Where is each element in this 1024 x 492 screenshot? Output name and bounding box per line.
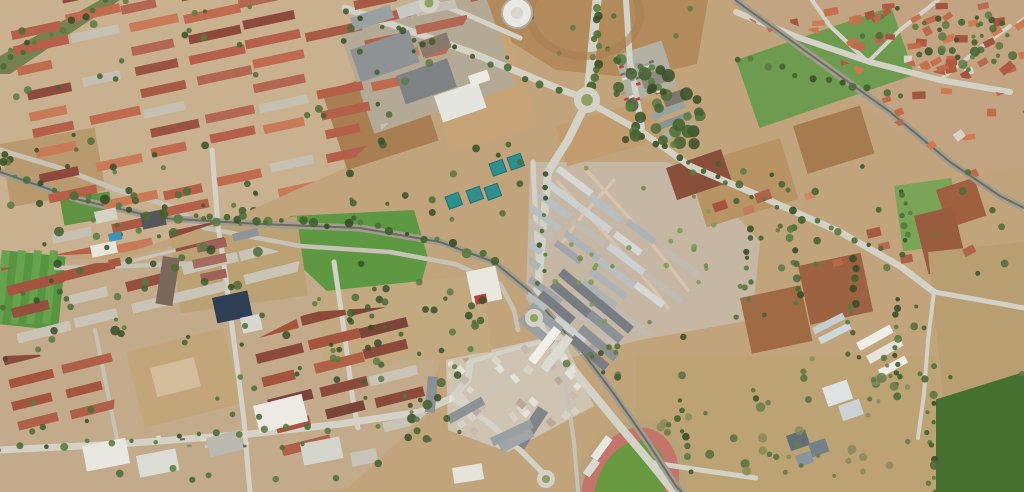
tree bbox=[409, 410, 413, 414]
tree bbox=[758, 433, 767, 442]
tree bbox=[850, 330, 855, 335]
tree bbox=[885, 363, 889, 367]
tree bbox=[199, 243, 208, 252]
tree bbox=[733, 198, 739, 204]
tree bbox=[420, 236, 427, 243]
tree bbox=[860, 469, 866, 475]
tree bbox=[542, 213, 546, 217]
tree bbox=[231, 203, 236, 208]
tree bbox=[91, 217, 96, 222]
tree bbox=[52, 188, 57, 193]
satellite-map-view[interactable] bbox=[0, 0, 1024, 492]
tree bbox=[931, 401, 936, 406]
tree bbox=[201, 142, 209, 150]
building bbox=[941, 88, 952, 95]
tree bbox=[751, 388, 756, 393]
tree bbox=[42, 242, 46, 246]
tree bbox=[449, 329, 456, 336]
tree bbox=[799, 463, 803, 467]
tree bbox=[894, 370, 899, 375]
tree bbox=[652, 141, 659, 148]
tree bbox=[753, 395, 759, 401]
tree bbox=[684, 443, 690, 449]
tree bbox=[153, 440, 157, 444]
tree bbox=[31, 40, 36, 45]
tree bbox=[683, 112, 692, 121]
tree bbox=[556, 87, 563, 94]
tree bbox=[201, 278, 209, 286]
tree bbox=[374, 339, 382, 347]
tree bbox=[113, 76, 119, 82]
tree bbox=[65, 164, 70, 169]
tree bbox=[0, 305, 6, 311]
tree bbox=[996, 53, 1000, 57]
tree bbox=[298, 366, 302, 370]
tree bbox=[813, 261, 819, 267]
tree bbox=[468, 302, 475, 309]
tree bbox=[330, 348, 335, 353]
tree bbox=[748, 279, 753, 284]
tree bbox=[863, 84, 870, 91]
tree bbox=[589, 252, 593, 256]
tree bbox=[201, 216, 206, 221]
tree bbox=[385, 202, 389, 206]
tree bbox=[958, 60, 967, 69]
tree bbox=[810, 356, 815, 361]
tree bbox=[283, 424, 289, 430]
tree bbox=[536, 80, 544, 88]
tree bbox=[899, 192, 905, 198]
tree bbox=[651, 123, 662, 134]
tree bbox=[29, 428, 35, 434]
tree bbox=[989, 25, 996, 32]
tree bbox=[237, 374, 243, 380]
tree bbox=[783, 470, 788, 475]
tree bbox=[240, 342, 244, 346]
tree bbox=[798, 216, 806, 224]
tree bbox=[496, 153, 501, 158]
tree bbox=[834, 228, 842, 236]
tree bbox=[552, 279, 558, 285]
tree bbox=[625, 103, 634, 112]
tree bbox=[368, 325, 374, 331]
tree bbox=[680, 87, 693, 100]
tree bbox=[376, 424, 381, 429]
tree bbox=[87, 137, 95, 145]
tree bbox=[758, 235, 763, 240]
tree bbox=[252, 217, 260, 225]
tree bbox=[789, 207, 797, 215]
tree bbox=[800, 374, 807, 381]
tree bbox=[85, 419, 89, 423]
tree bbox=[48, 336, 55, 343]
tree bbox=[1008, 51, 1017, 60]
tree bbox=[778, 223, 783, 228]
tree bbox=[666, 422, 672, 428]
tree bbox=[849, 255, 857, 263]
tree bbox=[895, 297, 899, 301]
tree bbox=[385, 227, 393, 235]
tree bbox=[883, 264, 890, 271]
tree bbox=[412, 49, 416, 53]
tree bbox=[420, 41, 426, 47]
tree bbox=[625, 68, 637, 80]
tree bbox=[60, 443, 68, 451]
tree bbox=[899, 252, 905, 258]
tree bbox=[905, 232, 911, 238]
tree bbox=[141, 278, 149, 286]
tree bbox=[40, 424, 46, 430]
tree bbox=[871, 377, 877, 383]
tree bbox=[893, 392, 901, 400]
tree bbox=[114, 317, 118, 321]
tree bbox=[852, 265, 859, 272]
tree bbox=[352, 294, 360, 302]
tree bbox=[175, 191, 182, 198]
tree bbox=[971, 35, 975, 39]
tree bbox=[696, 280, 700, 284]
tree bbox=[141, 285, 148, 292]
tree bbox=[417, 352, 421, 356]
tree bbox=[126, 207, 132, 213]
tree bbox=[916, 51, 922, 57]
tree bbox=[894, 335, 902, 343]
tree bbox=[122, 325, 127, 330]
tree bbox=[404, 434, 412, 442]
tree bbox=[980, 34, 984, 38]
tree bbox=[998, 223, 1005, 230]
tree bbox=[877, 373, 887, 383]
building bbox=[885, 34, 895, 40]
tree bbox=[845, 458, 851, 464]
tree bbox=[635, 112, 646, 123]
tree bbox=[272, 476, 279, 483]
tree bbox=[333, 475, 340, 482]
tree bbox=[740, 168, 747, 175]
tree bbox=[414, 427, 421, 434]
tree bbox=[401, 77, 409, 85]
tree bbox=[212, 218, 221, 227]
tree bbox=[350, 200, 357, 207]
tree bbox=[570, 25, 576, 31]
tree bbox=[54, 227, 64, 237]
tree bbox=[375, 222, 381, 228]
tree bbox=[730, 434, 738, 442]
tree bbox=[20, 50, 26, 56]
tree bbox=[638, 64, 644, 70]
tree bbox=[890, 382, 899, 391]
tree bbox=[610, 264, 615, 269]
tree bbox=[472, 144, 480, 152]
tree bbox=[44, 444, 49, 449]
tree bbox=[593, 66, 600, 73]
tree bbox=[649, 64, 656, 71]
tree bbox=[978, 21, 983, 26]
tree bbox=[321, 113, 327, 119]
tree bbox=[985, 11, 993, 19]
tree bbox=[402, 192, 409, 199]
tree bbox=[542, 269, 546, 273]
tree bbox=[90, 20, 98, 28]
tree bbox=[691, 244, 697, 250]
tree bbox=[119, 58, 125, 64]
tree bbox=[429, 196, 436, 203]
tree bbox=[792, 73, 797, 78]
tree bbox=[248, 5, 252, 9]
tree bbox=[434, 394, 442, 402]
tree bbox=[82, 13, 89, 20]
tree bbox=[678, 398, 682, 402]
tree bbox=[904, 201, 908, 205]
tree bbox=[626, 245, 632, 251]
tree bbox=[905, 384, 911, 390]
tree bbox=[647, 83, 657, 93]
tree bbox=[517, 159, 523, 165]
tree bbox=[663, 263, 669, 269]
building bbox=[180, 438, 185, 441]
tree bbox=[762, 313, 767, 318]
tree bbox=[357, 16, 363, 22]
tree bbox=[263, 220, 268, 225]
tree bbox=[921, 375, 928, 382]
tree bbox=[576, 280, 581, 285]
tree bbox=[563, 360, 571, 368]
tree bbox=[692, 195, 696, 199]
tree bbox=[704, 263, 709, 268]
tree bbox=[244, 180, 251, 187]
tree bbox=[606, 344, 612, 350]
tree bbox=[55, 85, 60, 90]
tree bbox=[924, 430, 929, 435]
tree bbox=[989, 207, 995, 213]
tree bbox=[13, 93, 20, 100]
tree bbox=[540, 229, 545, 234]
building bbox=[156, 436, 160, 439]
tree bbox=[447, 288, 454, 295]
tree bbox=[398, 332, 403, 337]
tree bbox=[684, 453, 691, 460]
tree bbox=[535, 281, 540, 286]
tree bbox=[479, 296, 487, 304]
tree bbox=[654, 103, 664, 113]
tree bbox=[793, 260, 800, 267]
tree bbox=[959, 187, 967, 195]
tree bbox=[358, 261, 365, 268]
tree bbox=[892, 345, 897, 350]
tree bbox=[849, 83, 857, 91]
tree bbox=[1, 151, 8, 158]
tree bbox=[37, 180, 43, 186]
tree bbox=[115, 223, 120, 228]
tree bbox=[449, 239, 457, 247]
tree bbox=[888, 374, 892, 378]
tree bbox=[895, 362, 900, 367]
tree bbox=[487, 61, 493, 67]
tree bbox=[74, 147, 79, 152]
tree bbox=[309, 218, 318, 227]
tree bbox=[680, 429, 684, 433]
tree bbox=[405, 232, 409, 236]
tree bbox=[773, 454, 779, 460]
tree bbox=[680, 334, 687, 341]
tree bbox=[866, 413, 871, 418]
tree bbox=[93, 233, 100, 240]
tree bbox=[795, 426, 804, 435]
tree bbox=[711, 222, 716, 227]
tree bbox=[749, 195, 753, 199]
tree bbox=[999, 20, 1005, 26]
tree bbox=[233, 281, 242, 290]
tree bbox=[192, 10, 198, 16]
tree bbox=[186, 335, 190, 339]
tree bbox=[224, 214, 231, 221]
tree bbox=[53, 260, 61, 268]
tree bbox=[593, 4, 601, 12]
tree bbox=[341, 38, 347, 44]
tree bbox=[860, 33, 865, 38]
tree bbox=[178, 254, 185, 261]
tree bbox=[958, 19, 965, 26]
tree bbox=[929, 442, 934, 447]
tree bbox=[16, 442, 23, 449]
tree bbox=[706, 209, 711, 214]
tree bbox=[343, 8, 349, 14]
tree bbox=[69, 191, 78, 200]
tree bbox=[33, 297, 39, 303]
tree bbox=[747, 56, 753, 62]
tree bbox=[735, 180, 743, 188]
tree bbox=[465, 312, 473, 320]
tree bbox=[437, 378, 446, 387]
tree bbox=[357, 49, 363, 55]
tree bbox=[363, 396, 367, 400]
tree bbox=[892, 311, 898, 317]
tree bbox=[491, 257, 499, 265]
tree bbox=[304, 112, 310, 118]
tree bbox=[705, 450, 714, 459]
tree bbox=[932, 476, 936, 480]
tree bbox=[201, 203, 205, 207]
tree bbox=[386, 111, 393, 118]
tree bbox=[767, 451, 773, 457]
tree bbox=[378, 137, 385, 144]
tree bbox=[794, 441, 802, 449]
tree bbox=[434, 236, 439, 241]
tree bbox=[690, 169, 696, 175]
tree bbox=[324, 428, 331, 435]
tree bbox=[0, 63, 6, 69]
tree bbox=[347, 309, 355, 317]
tree bbox=[256, 414, 262, 420]
tree bbox=[100, 195, 110, 205]
tree bbox=[334, 376, 341, 383]
tree bbox=[776, 228, 780, 232]
tree bbox=[449, 217, 454, 222]
tree bbox=[588, 279, 594, 285]
water-tank-center bbox=[511, 7, 523, 19]
tree bbox=[35, 346, 41, 352]
tree bbox=[471, 322, 479, 330]
building bbox=[935, 3, 948, 10]
tree bbox=[931, 420, 935, 424]
tree bbox=[589, 302, 594, 307]
tree bbox=[312, 301, 317, 306]
tree bbox=[1005, 33, 1009, 37]
tree bbox=[299, 216, 307, 224]
tree bbox=[450, 170, 457, 177]
tree bbox=[418, 398, 423, 403]
tree bbox=[177, 434, 182, 439]
tree bbox=[443, 415, 450, 422]
building bbox=[244, 442, 249, 445]
tree bbox=[664, 429, 671, 436]
tree bbox=[8, 48, 13, 53]
tree bbox=[480, 250, 487, 257]
tree bbox=[116, 202, 122, 208]
tree bbox=[756, 402, 766, 412]
tree bbox=[67, 304, 74, 311]
tree bbox=[703, 411, 707, 415]
tree bbox=[242, 323, 248, 329]
tree bbox=[598, 350, 604, 356]
tree bbox=[601, 370, 605, 374]
tree bbox=[934, 231, 939, 236]
tree bbox=[132, 197, 139, 204]
tree bbox=[110, 164, 117, 171]
tree bbox=[715, 174, 720, 179]
tree bbox=[875, 32, 883, 40]
tree bbox=[543, 196, 548, 201]
tree bbox=[477, 317, 484, 324]
tree bbox=[457, 430, 461, 434]
tree bbox=[995, 42, 1003, 50]
tree bbox=[735, 57, 741, 63]
tree bbox=[747, 225, 754, 232]
tree bbox=[49, 32, 54, 37]
tree bbox=[24, 86, 32, 94]
tree bbox=[925, 410, 929, 414]
tree bbox=[253, 247, 263, 257]
tree bbox=[748, 235, 754, 241]
tree bbox=[423, 435, 431, 443]
tree bbox=[765, 400, 771, 406]
tree bbox=[136, 227, 142, 233]
tree bbox=[759, 446, 767, 454]
tree bbox=[813, 237, 821, 245]
tree bbox=[374, 70, 379, 75]
roundabout-center bbox=[542, 475, 550, 483]
tree bbox=[866, 243, 870, 247]
tree bbox=[881, 14, 886, 19]
tree bbox=[695, 115, 701, 121]
tree bbox=[914, 305, 918, 309]
tree bbox=[617, 55, 621, 59]
tree bbox=[253, 72, 259, 78]
tree bbox=[365, 304, 371, 310]
tree bbox=[85, 438, 90, 443]
tree bbox=[215, 396, 219, 400]
tree bbox=[380, 25, 384, 29]
tree bbox=[206, 245, 215, 254]
tree bbox=[937, 27, 942, 32]
tree bbox=[687, 6, 693, 12]
tree bbox=[693, 95, 702, 104]
tree bbox=[522, 76, 528, 82]
tree bbox=[630, 129, 642, 141]
tree bbox=[230, 411, 236, 417]
tree bbox=[931, 363, 937, 369]
tree bbox=[867, 397, 872, 402]
